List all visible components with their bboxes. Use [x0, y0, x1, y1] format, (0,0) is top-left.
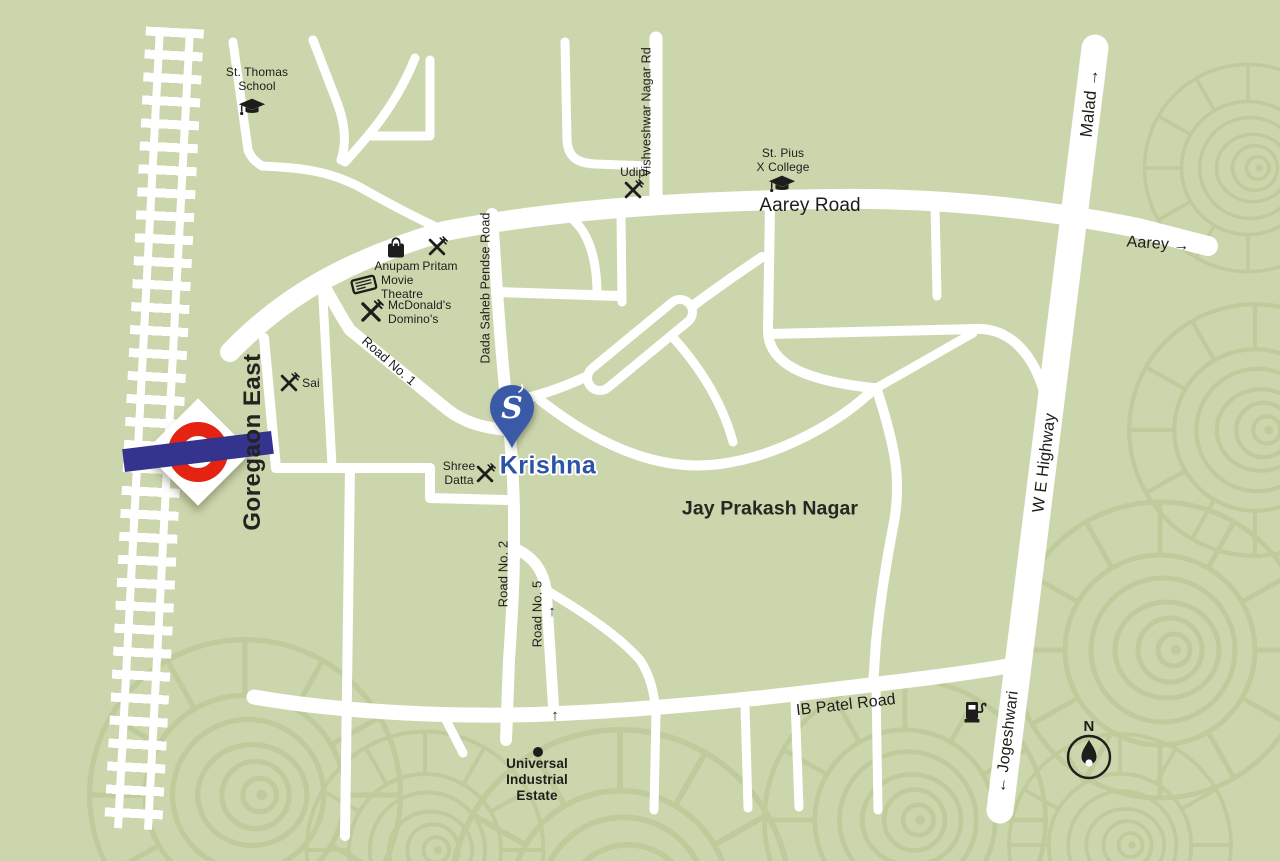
minor-road — [497, 292, 620, 296]
label-krishna: Krishna — [500, 451, 597, 481]
arrow-icon: → — [1082, 68, 1103, 87]
minor-road — [745, 706, 748, 808]
malad-text: Malad — [1076, 90, 1100, 139]
minor-road — [567, 215, 597, 294]
label-aarey-road: Aarey Road — [759, 195, 860, 217]
loop-road-core — [600, 312, 680, 378]
label-road-no-2: Road No. 2 — [495, 541, 510, 608]
krishna-location-pin: S — [489, 384, 535, 450]
restaurant-icon — [474, 463, 496, 485]
restaurant-icon — [622, 179, 644, 201]
label-road-no-5: Road No. 5 — [529, 581, 544, 648]
restaurant-icon — [278, 372, 300, 394]
poi-sai: Sai — [302, 376, 320, 390]
locality-map: St. Thomas School St. Pius X College Udi… — [0, 0, 1280, 861]
road5-up-arrow: ↑ — [551, 707, 559, 725]
shopping-bag-icon — [385, 236, 407, 260]
compass-icon — [1064, 732, 1114, 782]
minor-road — [345, 468, 350, 836]
road5-up-arrow: ↑ — [548, 603, 556, 621]
pin-monogram: S — [501, 391, 523, 426]
label-universal-industrial-estate: Universal Industrial Estate — [506, 756, 568, 804]
minor-road — [768, 206, 873, 388]
aarey-text: Aarey — [1126, 233, 1169, 253]
minor-road — [565, 42, 650, 166]
ticket-icon — [350, 272, 378, 298]
minor-road — [935, 206, 937, 296]
minor-road — [345, 58, 415, 162]
label-vishveshwar-nagar-rd: Vishveshwar Nagar Rd — [640, 47, 655, 177]
poi-pritam: Pritam — [422, 259, 457, 273]
poi-shree-datta: Shree Datta — [443, 459, 476, 487]
fuel-pump-icon — [963, 698, 989, 726]
graduation-cap-icon — [237, 95, 267, 121]
dada-saheb-pendse-road-path — [492, 214, 506, 398]
minor-road — [668, 332, 733, 442]
ib-patel-road-path — [254, 662, 1022, 715]
label-goregaon-east-station: Goregaon East — [239, 353, 267, 530]
restaurant-icon — [426, 236, 448, 258]
arrow-icon: → — [1173, 237, 1190, 255]
label-dada-saheb-pendse-road: Dada Saheb Pendse Road — [479, 213, 494, 364]
minor-road — [262, 166, 445, 231]
minor-road — [446, 720, 463, 753]
minor-road — [873, 390, 897, 686]
poi-st-thomas-school: St. Thomas School — [226, 65, 288, 93]
minor-road — [313, 40, 344, 160]
poi-st-pius-x-college: St. Pius X College — [757, 146, 810, 174]
minor-road — [621, 214, 622, 302]
restaurant-icon — [358, 299, 384, 325]
label-jay-prakash-nagar: Jay Prakash Nagar — [682, 498, 858, 521]
poi-anupam: Anupam — [374, 259, 419, 273]
universal-dot-marker — [533, 747, 543, 757]
minor-road — [873, 333, 973, 390]
poi-mcdonalds-dominos: McDonald's Domino's — [388, 298, 451, 326]
arrow-icon: ← — [992, 776, 1011, 794]
